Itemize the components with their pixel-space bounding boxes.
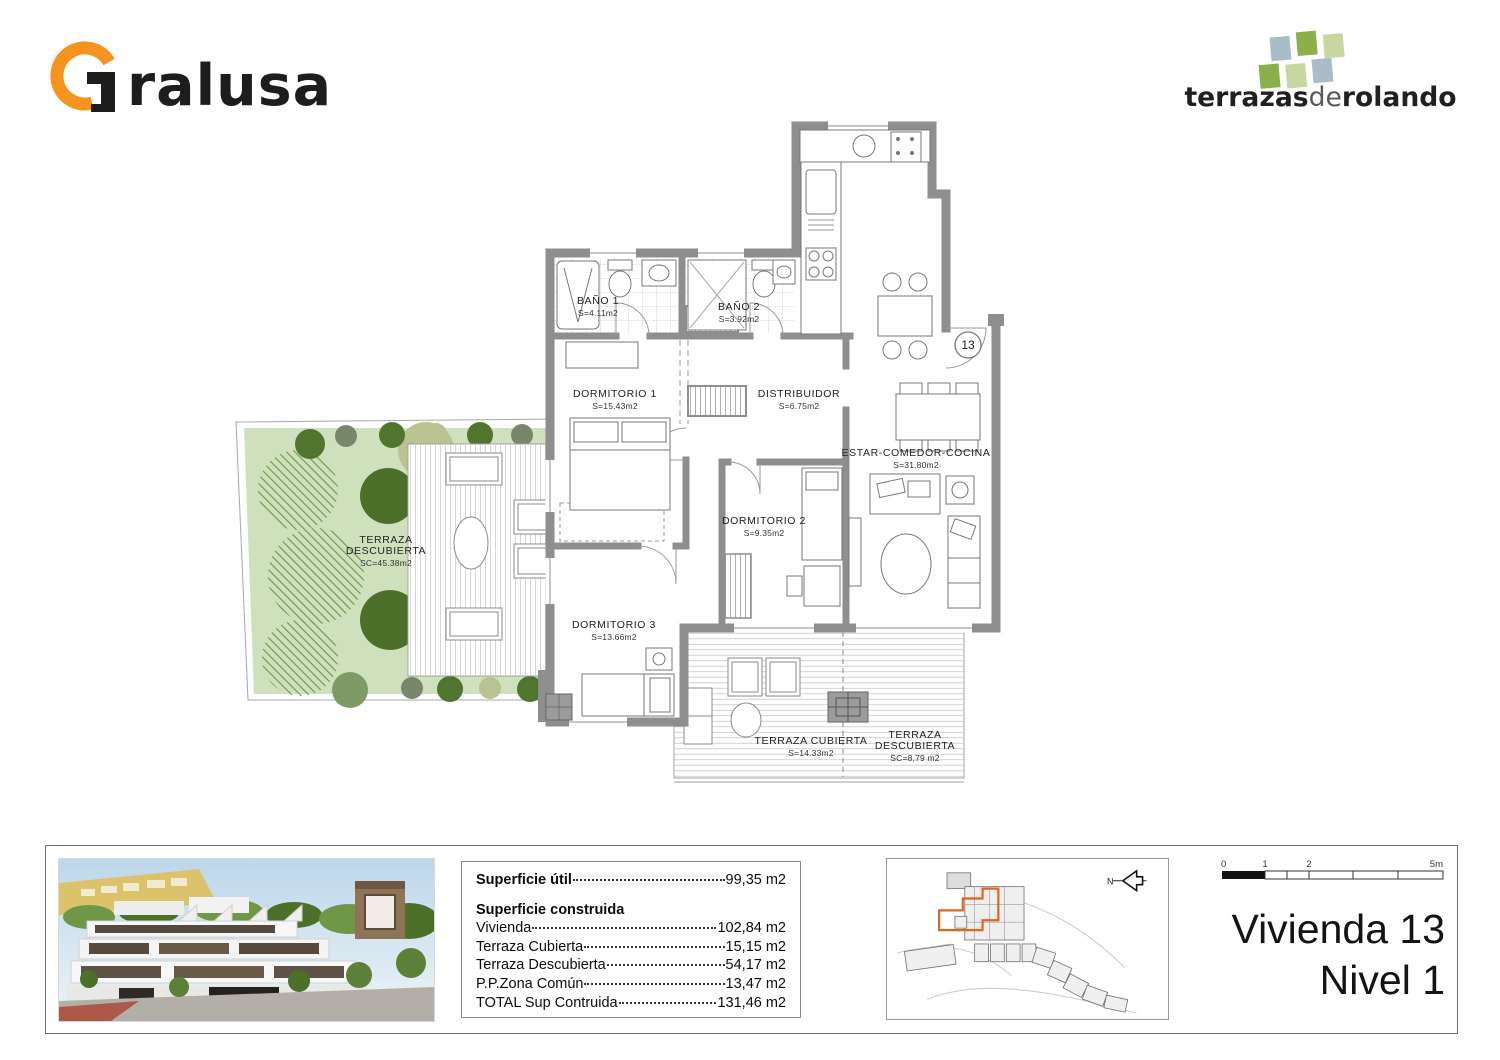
room-label: BAÑO 1 — [577, 294, 619, 307]
scale-label-5m: 5m — [1430, 859, 1443, 870]
unit-number: 13 — [961, 338, 975, 352]
scale-label-0: 0 — [1221, 859, 1226, 870]
scale-label-2: 2 — [1306, 859, 1311, 870]
building-render — [58, 858, 435, 1022]
north-arrow-icon: N — [1107, 871, 1147, 891]
superficie-util-label: Superficie útil — [476, 871, 572, 890]
sheet-title-line2: Nivel 1 — [1231, 955, 1445, 1006]
area-row: Vivienda102,84 m2 — [476, 919, 786, 938]
gralusa-wordmark: ralusa — [127, 53, 332, 114]
superficie-construida-title: Superficie construida — [476, 901, 786, 920]
room-label: S=31.80m2 — [893, 460, 939, 470]
room-label: TERRAZA CUBIERTA — [754, 735, 867, 747]
terrazas-wordmark: terrazasderolando — [1184, 82, 1456, 113]
area-row: Terraza Cubierta15,15 m2 — [476, 938, 786, 957]
north-label: N — [1107, 877, 1113, 887]
area-row: P.P.Zona Común13,47 m2 — [476, 975, 786, 994]
area-row: Terraza Descubierta54,17 m2 — [476, 956, 786, 975]
room-label: DISTRIBUIDOR — [758, 388, 840, 400]
gralusa-logo: ralusa — [45, 34, 355, 114]
garden-deck — [408, 444, 554, 676]
gralusa-g-hook-icon — [87, 72, 115, 112]
terrazas-logo: terrazasderolando — [1178, 28, 1463, 116]
area-rows: Vivienda102,84 m2Terraza Cubierta15,15 m… — [476, 919, 786, 1012]
unit-badge: 13 — [955, 332, 981, 358]
room-label: S=6.75m2 — [779, 401, 820, 411]
leader-dots — [573, 879, 725, 881]
room-label: SC=45.38m2 — [360, 558, 412, 568]
superficie-util-row: Superficie útil 99,35 m2 — [476, 871, 786, 890]
title-strip: Superficie útil 99,35 m2 Superficie cons… — [45, 845, 1458, 1034]
room-label: S=13.66m2 — [591, 632, 637, 642]
room-label: DESCUBIERTA — [346, 545, 426, 557]
scale-bar: 0 1 2 5m — [1221, 858, 1446, 888]
site-plan: N — [886, 858, 1169, 1020]
room-label: SC=8,79 m2 — [890, 753, 940, 763]
room-label: ESTAR-COMEDOR-COCINA — [842, 447, 991, 459]
room-label: S=14.33m2 — [788, 748, 834, 758]
sheet-title: Vivienda 13 Nivel 1 — [1231, 904, 1445, 1006]
floor-plan: 13 BAÑO 1S=4.11m2BAÑO 2S=3.92m2DORMITORI… — [228, 118, 1020, 790]
room-label: BAÑO 2 — [718, 300, 760, 313]
room-label: DORMITORIO 2 — [722, 515, 806, 527]
site-buildings — [904, 873, 1127, 1012]
room-label: DORMITORIO 3 — [572, 619, 656, 631]
room-label: S=3.92m2 — [719, 314, 760, 324]
superficie-util-value: 99,35 m2 — [726, 871, 786, 890]
plan-sheet: ralusa terrazasderolando — [0, 0, 1500, 1060]
scale-label-1: 1 — [1262, 859, 1267, 870]
room-label: S=4.11m2 — [578, 308, 618, 318]
room-label: DESCUBIERTA — [875, 740, 955, 752]
area-table: Superficie útil 99,35 m2 Superficie cons… — [461, 861, 801, 1018]
sheet-title-line1: Vivienda 13 — [1231, 904, 1445, 955]
room-label: S=15.43m2 — [592, 401, 638, 411]
area-row: TOTAL Sup Contruida131,46 m2 — [476, 994, 786, 1013]
room-label: DORMITORIO 1 — [573, 388, 657, 400]
room-label: S=9.35m2 — [744, 528, 785, 538]
